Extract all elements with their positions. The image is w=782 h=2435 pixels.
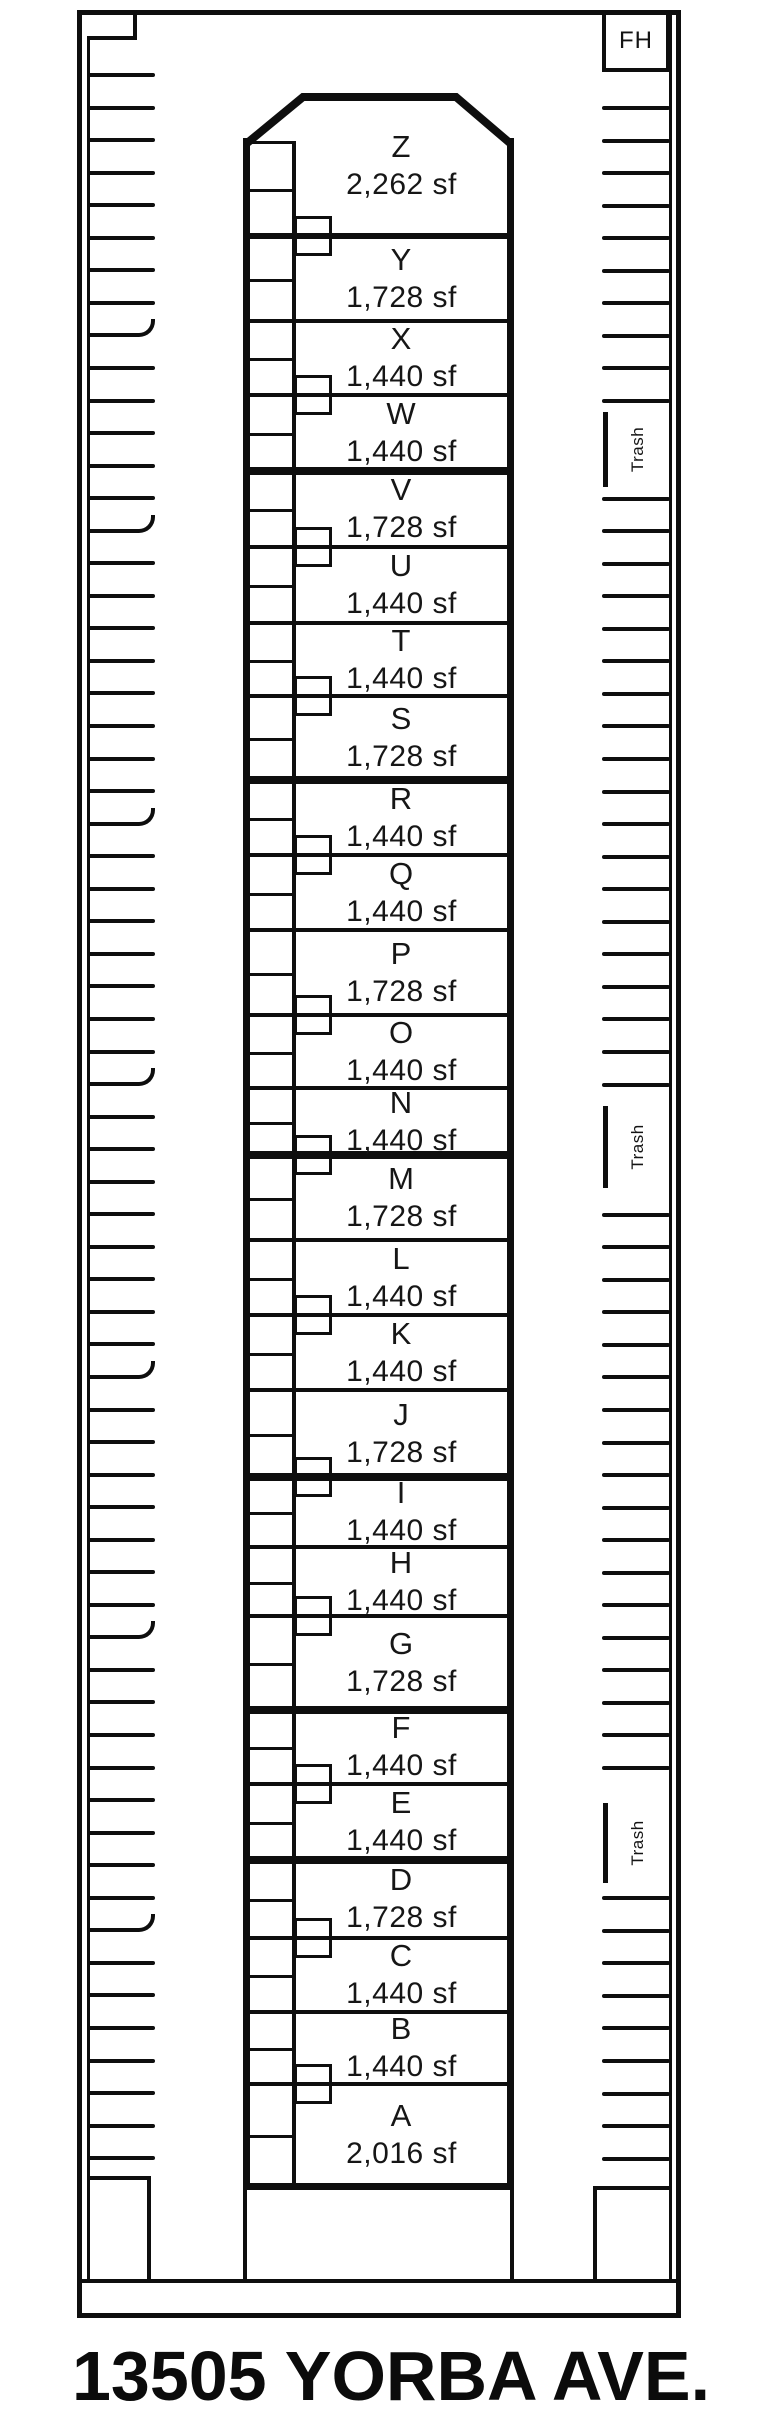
unit-area: 1,728 sf	[346, 1201, 457, 1233]
unit-J: J1,728 sf	[296, 1390, 507, 1477]
unit-area: 1,440 sf	[346, 1515, 457, 1547]
parking-stall-line	[87, 366, 155, 370]
unit-area: 1,440 sf	[346, 2051, 457, 2083]
unit-area: 1,728 sf	[346, 1902, 457, 1934]
closet-divider	[246, 2135, 296, 2138]
parking-stall-line	[602, 1929, 670, 1933]
parking-stall-line	[87, 724, 155, 728]
parking-stall-line	[602, 1245, 670, 1249]
unit-area: 1,728 sf	[346, 512, 457, 544]
parking-stall-line	[87, 952, 155, 956]
unit-letter: G	[389, 1628, 414, 1661]
parking-stall-line	[602, 692, 670, 696]
parking-stall-line	[602, 139, 670, 143]
parking-stall-line	[87, 171, 155, 175]
parking-stall-line	[87, 1896, 155, 1900]
unit-area: 1,728 sf	[346, 1437, 457, 1469]
closet-divider	[246, 1899, 296, 1902]
parking-stall-line-curved	[87, 1621, 155, 1639]
parking-stall-line	[87, 1570, 155, 1574]
parking-stall-line	[87, 594, 155, 598]
parking-stall-line	[87, 659, 155, 663]
parking-stall-line	[602, 1375, 670, 1379]
left-curb-line	[87, 36, 90, 2279]
unit-P: P1,728 sf	[296, 930, 507, 1015]
parking-stall-line	[87, 1863, 155, 1867]
unit-letter: A	[391, 2100, 413, 2133]
unit-area: 1,440 sf	[346, 1125, 457, 1157]
parking-stall-line	[602, 1538, 670, 1542]
unit-B: B1,440 sf	[296, 2012, 507, 2084]
parking-stall-line	[602, 1213, 670, 1217]
parking-stall-line	[87, 1310, 155, 1314]
parking-stall-line	[87, 268, 155, 272]
unit-E: E1,440 sf	[296, 1784, 507, 1860]
parking-stall-line	[87, 561, 155, 565]
parking-stall-line	[602, 1083, 670, 1087]
parking-stall-line	[602, 1506, 670, 1510]
unit-area: 1,728 sf	[346, 976, 457, 1008]
parking-stall-line	[87, 399, 155, 403]
closet-divider	[246, 973, 296, 976]
parking-stall-line	[602, 1896, 670, 1900]
parking-stall-line	[87, 2026, 155, 2030]
unit-W: W1,440 sf	[296, 395, 507, 471]
unit-area: 1,440 sf	[346, 588, 457, 620]
parking-stall-line	[602, 236, 670, 240]
unit-X: X1,440 sf	[296, 321, 507, 395]
parking-stall-line	[602, 1310, 670, 1314]
unit-area: 1,440 sf	[346, 896, 457, 928]
unit-area: 1,728 sf	[346, 741, 457, 773]
unit-S: S1,728 sf	[296, 696, 507, 780]
parking-stall-line-curved	[87, 319, 155, 337]
bottom-left-cell	[89, 2176, 151, 2281]
unit-letter: Y	[391, 244, 413, 277]
parking-stall-line	[87, 496, 155, 500]
parking-stall-line	[602, 269, 670, 273]
parking-stall-line	[602, 1603, 670, 1607]
unit-L: L1,440 sf	[296, 1240, 507, 1315]
closet-divider	[246, 1434, 296, 1437]
parking-stall-line	[602, 2124, 670, 2128]
parking-stall-line	[602, 627, 670, 631]
closet-divider	[246, 1512, 296, 1515]
unit-area: 1,728 sf	[346, 282, 457, 314]
parking-stall-line	[602, 757, 670, 761]
unit-area: 1,440 sf	[346, 1356, 457, 1388]
parking-stall-line	[87, 1831, 155, 1835]
unit-F: F1,440 sf	[296, 1710, 507, 1784]
unit-letter: D	[390, 1864, 413, 1897]
parking-stall-line	[87, 691, 155, 695]
closet-top-line	[246, 141, 296, 144]
parking-stall-line	[602, 1408, 670, 1412]
closet-divider	[246, 660, 296, 663]
parking-stall-line	[87, 106, 155, 110]
parking-stall-line	[87, 626, 155, 630]
parking-stall-line	[87, 1798, 155, 1802]
bottom-right-cell	[593, 2186, 671, 2281]
parking-stall-line-curved	[87, 1914, 155, 1932]
parking-stall-line	[87, 984, 155, 988]
parking-stall-line	[602, 1994, 670, 1998]
parking-stall-line	[602, 985, 670, 989]
unit-K: K1,440 sf	[296, 1315, 507, 1390]
closet-divider	[246, 1822, 296, 1825]
unit-letter: C	[390, 1940, 413, 1973]
parking-stall-line	[87, 1668, 155, 1672]
closet-divider	[246, 818, 296, 821]
top-left-notch-hline	[89, 36, 137, 40]
unit-letter: K	[391, 1318, 413, 1351]
parking-stall-line	[87, 789, 155, 793]
parking-stall-line	[87, 236, 155, 240]
parking-stall-line	[602, 952, 670, 956]
trash-enclosure-bar	[603, 412, 608, 487]
parking-stall-line	[602, 497, 670, 501]
unit-area: 1,440 sf	[346, 821, 457, 853]
bottom-band-line	[82, 2279, 676, 2283]
closet-divider	[246, 1198, 296, 1201]
parking-stall-line	[87, 73, 155, 77]
unit-O: O1,440 sf	[296, 1015, 507, 1088]
trash-enclosure-bar	[603, 1106, 608, 1188]
unit-letter: T	[392, 625, 412, 658]
parking-stall-line	[602, 1473, 670, 1477]
parking-stall-line	[87, 203, 155, 207]
parking-stall-line	[602, 1636, 670, 1640]
unit-H: H1,440 sf	[296, 1547, 507, 1616]
parking-stall-line	[602, 855, 670, 859]
unit-D: D1,728 sf	[296, 1860, 507, 1938]
parking-stall-line	[87, 1440, 155, 1444]
unit-area: 1,440 sf	[346, 1978, 457, 2010]
parking-stall-line	[602, 1766, 670, 1770]
unit-M: M1,728 sf	[296, 1155, 507, 1240]
unit-letter: J	[393, 1399, 410, 1432]
parking-stall-line	[87, 1212, 155, 1216]
unit-letter: M	[388, 1163, 415, 1196]
parking-stall-line	[87, 1342, 155, 1346]
unit-letter: Z	[392, 131, 412, 164]
parking-stall-line	[602, 1961, 670, 1965]
unit-area: 2,262 sf	[346, 169, 457, 201]
parking-stall-line	[602, 2026, 670, 2030]
parking-stall-line	[602, 1278, 670, 1282]
parking-stall-line	[87, 464, 155, 468]
parking-stall-line	[87, 1700, 155, 1704]
parking-stall-line	[602, 790, 670, 794]
building-left-wall	[243, 138, 250, 2190]
parking-stall-line	[87, 1961, 155, 1965]
closet-divider	[246, 433, 296, 436]
parking-stall-line	[602, 1701, 670, 1705]
parking-stall-line-curved	[87, 808, 155, 826]
closet-divider	[246, 1122, 296, 1125]
unit-T: T1,440 sf	[296, 623, 507, 696]
parking-stall-line	[87, 1733, 155, 1737]
parking-stall-line	[602, 659, 670, 663]
parking-stall-line	[87, 1277, 155, 1281]
parking-stall-line	[602, 887, 670, 891]
parking-stall-line	[602, 1017, 670, 1021]
parking-stall-line	[602, 920, 670, 924]
parking-stall-line	[87, 1538, 155, 1542]
parking-stall-line	[602, 1733, 670, 1737]
fire-hydrant-box: FH	[602, 10, 670, 72]
unit-letter: N	[390, 1087, 413, 1120]
parking-stall-line	[602, 366, 670, 370]
parking-stall-line	[87, 887, 155, 891]
parking-stall-line	[87, 1180, 155, 1184]
unit-letter: L	[392, 1243, 410, 1276]
unit-letter: Q	[389, 858, 414, 891]
unit-A: A2,016 sf	[296, 2084, 507, 2185]
unit-letter: S	[391, 703, 413, 736]
unit-N: N1,440 sf	[296, 1088, 507, 1155]
parking-stall-line	[602, 562, 670, 566]
parking-stall-line	[602, 399, 670, 403]
parking-stall-line-curved	[87, 515, 155, 533]
parking-stall-line	[87, 919, 155, 923]
parking-stall-line	[602, 301, 670, 305]
unit-V: V1,728 sf	[296, 471, 507, 547]
parking-stall-line	[602, 1571, 670, 1575]
parking-stall-line	[87, 1505, 155, 1509]
parking-stall-line	[602, 2059, 670, 2063]
unit-area: 1,440 sf	[346, 663, 457, 695]
closet-divider	[246, 2048, 296, 2051]
parking-stall-line	[87, 1603, 155, 1607]
closet-divider	[246, 1052, 296, 1055]
closet-divider	[246, 1975, 296, 1978]
closet-divider	[246, 279, 296, 282]
unit-letter: F	[392, 1712, 412, 1745]
unit-C: C1,440 sf	[296, 1938, 507, 2012]
closet-divider	[246, 1278, 296, 1281]
building-stub-left-wall	[243, 2190, 247, 2281]
parking-stall-line	[602, 171, 670, 175]
parking-stall-line	[87, 1147, 155, 1151]
unit-letter: E	[391, 1787, 413, 1820]
unit-R: R1,440 sf	[296, 780, 507, 855]
parking-stall-line	[87, 2091, 155, 2095]
unit-area: 1,440 sf	[346, 1281, 457, 1313]
fire-hydrant-label: FH	[619, 27, 653, 55]
right-curb-line	[669, 15, 672, 2279]
parking-stall-line	[602, 1050, 670, 1054]
parking-stall-line	[602, 204, 670, 208]
closet-divider	[246, 1663, 296, 1666]
unit-Y: Y1,728 sf	[296, 236, 507, 321]
parking-stall-line	[87, 301, 155, 305]
parking-stall-line	[87, 1115, 155, 1119]
unit-area: 1,440 sf	[346, 361, 457, 393]
unit-area: 2,016 sf	[346, 2138, 457, 2170]
unit-U: U1,440 sf	[296, 547, 507, 623]
parking-stall-line	[87, 2059, 155, 2063]
parking-stall-line	[87, 854, 155, 858]
parking-stall-line	[87, 1993, 155, 1997]
unit-letter: R	[390, 783, 413, 816]
closet-divider	[246, 1353, 296, 1356]
unit-G: G1,728 sf	[296, 1616, 507, 1710]
closet-divider	[246, 1582, 296, 1585]
parking-stall-line	[87, 757, 155, 761]
unit-letter: P	[391, 938, 413, 971]
parking-stall-line	[87, 1766, 155, 1770]
unit-Q: Q1,440 sf	[296, 855, 507, 930]
closet-divider	[246, 585, 296, 588]
unit-letter: O	[389, 1017, 414, 1050]
closet-divider	[246, 1747, 296, 1750]
parking-stall-line	[87, 138, 155, 142]
parking-stall-line	[602, 594, 670, 598]
closet-divider	[246, 893, 296, 896]
parking-stall-line	[602, 529, 670, 533]
parking-stall-line-curved	[87, 1361, 155, 1379]
parking-stall-line	[87, 1245, 155, 1249]
closet-divider	[246, 509, 296, 512]
trash-label: Trash	[616, 1803, 660, 1883]
trash-enclosure-bar	[603, 1803, 608, 1883]
parking-stall-line	[87, 2124, 155, 2128]
parking-stall-line	[602, 106, 670, 110]
trash-label: Trash	[616, 412, 660, 487]
unit-letter: U	[390, 550, 413, 583]
parking-stall-line-curved	[87, 1068, 155, 1086]
unit-I: I1,440 sf	[296, 1477, 507, 1547]
parking-stall-line	[87, 1408, 155, 1412]
parking-stall-line	[87, 1017, 155, 1021]
unit-area: 1,440 sf	[346, 1825, 457, 1857]
parking-stall-line	[602, 822, 670, 826]
unit-area: 1,440 sf	[346, 1750, 457, 1782]
unit-area: 1,728 sf	[346, 1666, 457, 1698]
parking-stall-line	[602, 724, 670, 728]
unit-area: 1,440 sf	[346, 1055, 457, 1087]
unit-area: 1,440 sf	[346, 436, 457, 468]
unit-letter: W	[386, 398, 416, 431]
site-plan: 13505 YORBA AVE. FHTrashTrashTrashZ2,262…	[0, 0, 782, 2435]
parking-stall-line	[87, 431, 155, 435]
closet-divider	[246, 189, 296, 192]
closet-divider	[246, 358, 296, 361]
parking-stall-line	[87, 1473, 155, 1477]
parking-stall-line	[602, 1343, 670, 1347]
unit-letter: B	[391, 2013, 413, 2046]
closet-divider	[246, 738, 296, 741]
parking-stall-line	[602, 1668, 670, 1672]
parking-stall-line	[87, 1050, 155, 1054]
building-right-wall	[507, 138, 514, 2190]
parking-stall-line	[602, 334, 670, 338]
parking-stall-line	[602, 2157, 670, 2161]
unit-letter: H	[390, 1547, 413, 1580]
unit-letter: I	[397, 1477, 407, 1510]
parking-stall-line	[87, 2156, 155, 2160]
unit-letter: V	[391, 474, 413, 507]
trash-label: Trash	[616, 1106, 660, 1188]
unit-letter: X	[391, 323, 413, 356]
unit-area: 1,440 sf	[346, 1585, 457, 1617]
parking-stall-line	[602, 1441, 670, 1445]
parking-stall-line	[602, 2092, 670, 2096]
address-title: 13505 YORBA AVE.	[0, 2336, 782, 2416]
building-stub-right-wall	[510, 2190, 514, 2281]
unit-Z: Z2,262 sf	[296, 96, 507, 236]
